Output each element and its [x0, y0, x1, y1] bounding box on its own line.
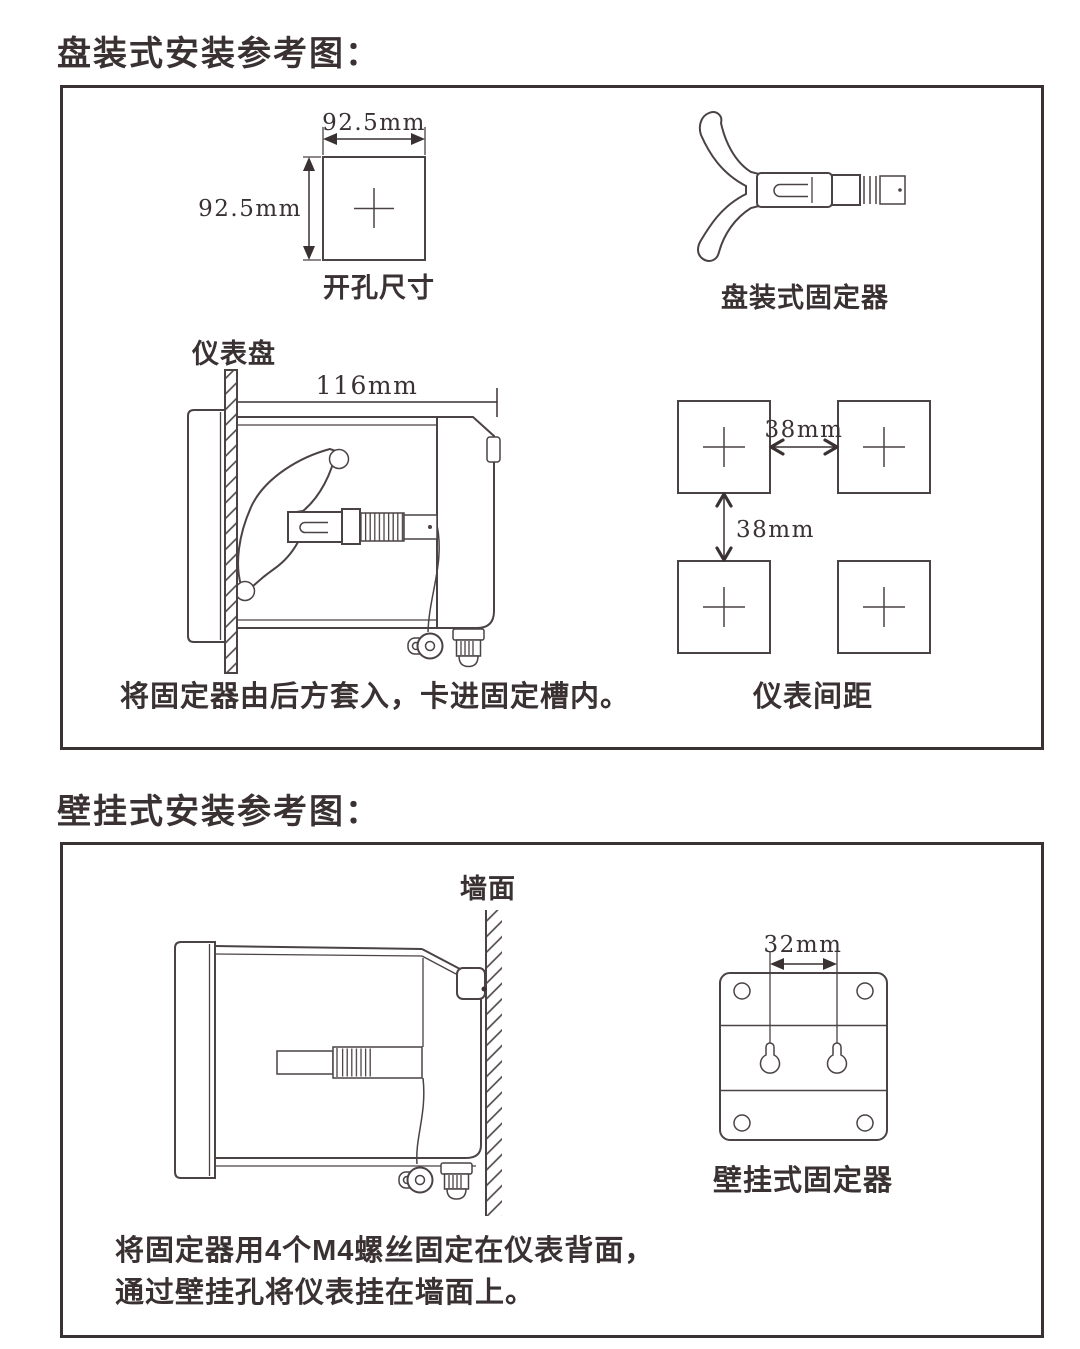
spacing-v-dim: 38mm — [736, 517, 815, 543]
wall-mount-section-title: 壁挂式安装参考图： — [57, 784, 381, 833]
panel-fixer-drawing: 盘装式固定器 — [698, 112, 905, 313]
panel-side-view-drawing: 仪表盘 116mm — [120, 338, 630, 713]
wall-caption-line1: 将固定器用4个M4螺丝固定在仪表背面， — [115, 1233, 654, 1267]
panel-mount-section-title: 盘装式安装参考图： — [57, 26, 381, 75]
panel-label: 仪表盘 — [191, 338, 276, 369]
panel-fixer-caption: 盘装式固定器 — [721, 282, 889, 313]
bracket-hole-dim: 32mm — [764, 932, 843, 958]
panel-side-view-caption: 将固定器由后方套入，卡进固定槽内。 — [120, 679, 630, 713]
wall-mount-diagram: 墙面 — [60, 842, 1044, 1338]
wall-fixer-caption: 壁挂式固定器 — [713, 1163, 893, 1197]
spacing-drawing: 38mm 38mm 仪表间距 — [678, 401, 930, 713]
wall-fixer-drawing: 32mm 壁挂式固定器 — [713, 932, 893, 1197]
spacing-caption: 仪表间距 — [752, 680, 873, 713]
depth-dim: 116mm — [316, 371, 419, 400]
spacing-h-dim: 38mm — [765, 417, 844, 443]
cutout-caption: 开孔尺寸 — [323, 273, 435, 303]
cutout-drawing: 92.5mm 92.5mm 开孔尺寸 — [198, 110, 435, 303]
wall-side-view-drawing: 墙面 — [115, 874, 654, 1309]
panel-mount-diagram: 92.5mm 92.5mm 开孔尺寸 盘装式固定器 — [60, 85, 1044, 750]
cutout-width-dim: 92.5mm — [322, 110, 426, 136]
wall-label: 墙面 — [460, 874, 516, 904]
cutout-height-dim: 92.5mm — [198, 196, 302, 222]
wall-caption-line2: 通过壁挂孔将仪表挂在墙面上。 — [115, 1276, 535, 1309]
installation-guide-page: 盘装式安装参考图： 92.5mm 92.5mm — [0, 0, 1080, 1349]
